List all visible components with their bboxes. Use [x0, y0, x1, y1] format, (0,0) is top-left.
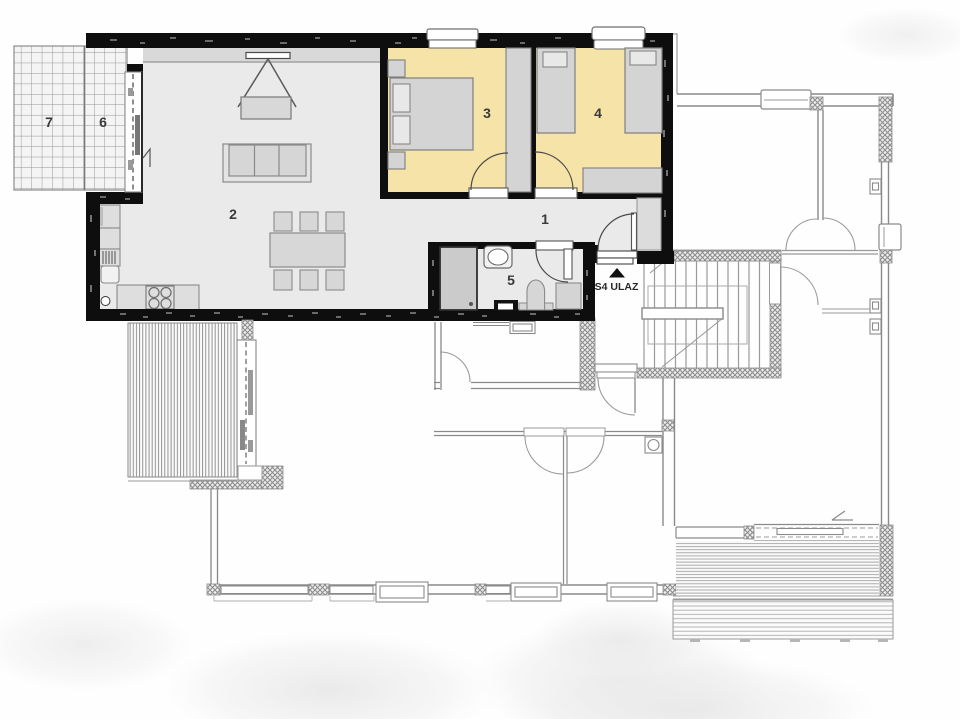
svg-text:2: 2 [229, 206, 237, 222]
svg-text:7: 7 [45, 114, 53, 130]
svg-text:S4 ULAZ: S4 ULAZ [595, 281, 639, 293]
svg-text:6: 6 [99, 114, 107, 130]
svg-text:1: 1 [541, 211, 549, 227]
svg-text:5: 5 [507, 272, 515, 288]
svg-text:4: 4 [594, 105, 602, 121]
svg-text:3: 3 [483, 105, 491, 121]
